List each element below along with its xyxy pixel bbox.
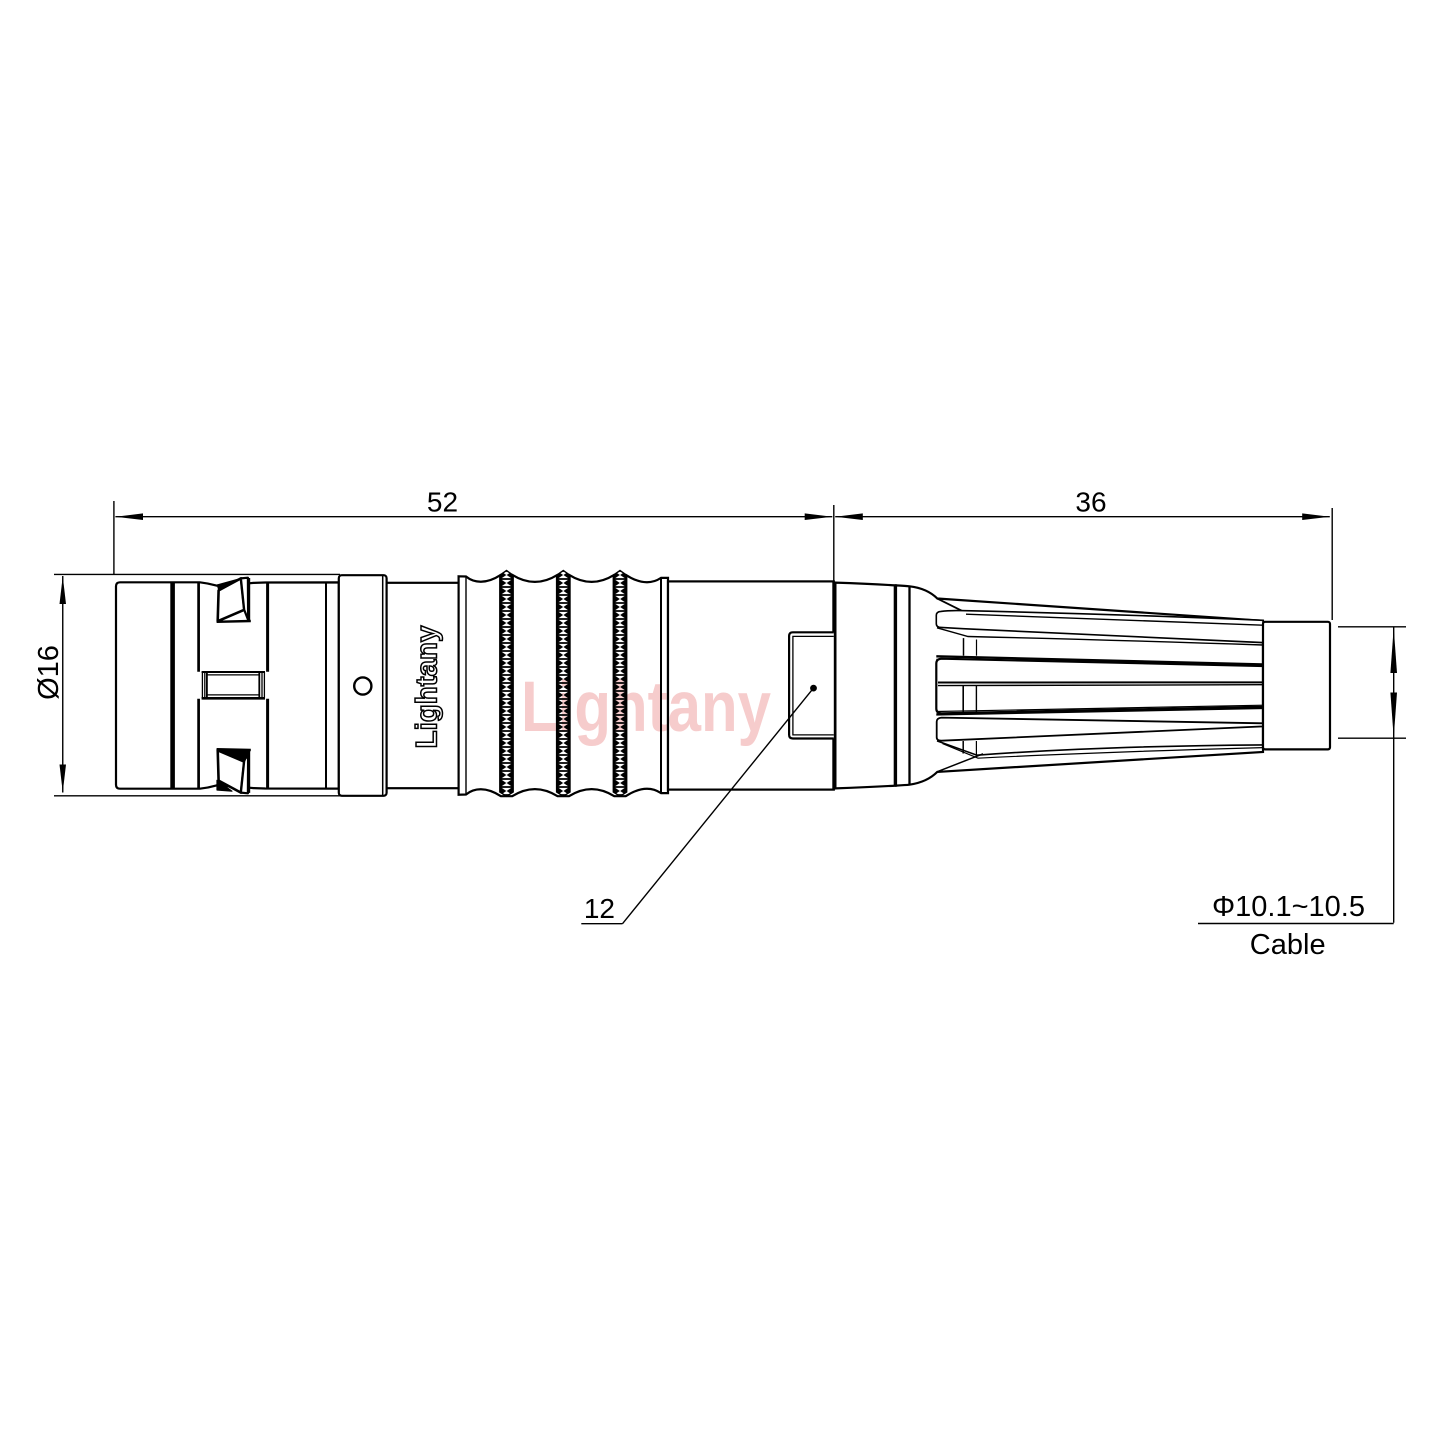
svg-text:Cable: Cable — [1250, 929, 1326, 961]
svg-text:Ø16: Ø16 — [33, 645, 65, 700]
svg-text:12: 12 — [584, 893, 615, 924]
svg-text:52: 52 — [427, 487, 458, 518]
svg-text:Lightany: Lightany — [521, 667, 771, 746]
svg-text:Lightany: Lightany — [411, 625, 444, 749]
svg-text:Φ10.1~10.5: Φ10.1~10.5 — [1212, 891, 1365, 923]
svg-text:36: 36 — [1075, 487, 1106, 518]
